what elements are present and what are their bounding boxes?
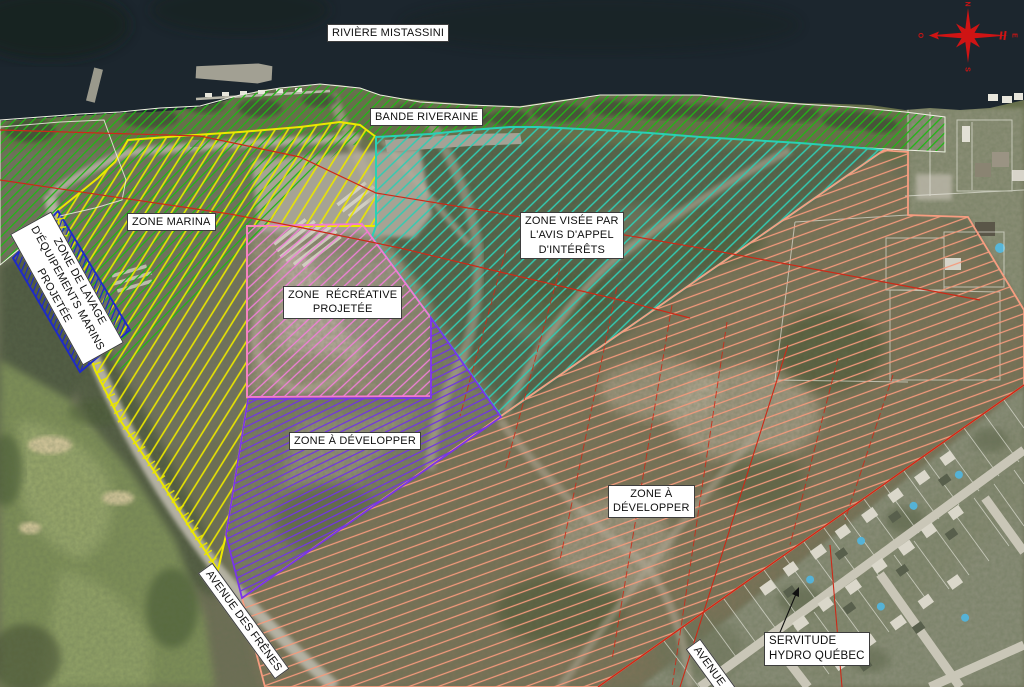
- svg-text:S: S: [964, 67, 971, 72]
- svg-text:E: E: [1011, 33, 1018, 38]
- svg-text:O: O: [917, 33, 924, 39]
- svg-text:N: N: [964, 1, 971, 6]
